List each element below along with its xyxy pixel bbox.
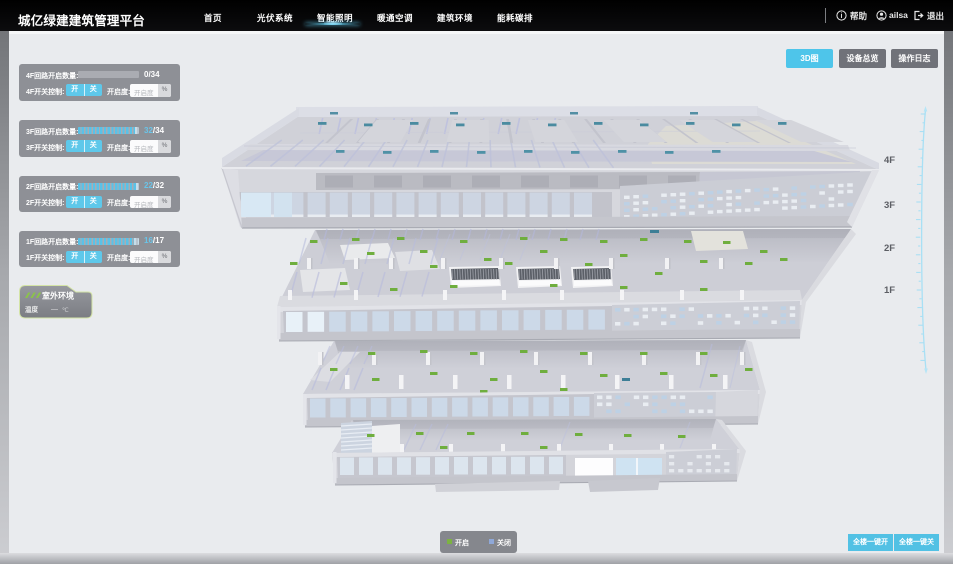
svg-text:温度: 温度: [25, 305, 39, 314]
svg-text:室外环境: 室外环境: [42, 291, 74, 301]
svg-text:—: —: [51, 307, 58, 314]
svg-text:i: i: [841, 13, 843, 20]
svg-text:℃: ℃: [62, 308, 69, 314]
